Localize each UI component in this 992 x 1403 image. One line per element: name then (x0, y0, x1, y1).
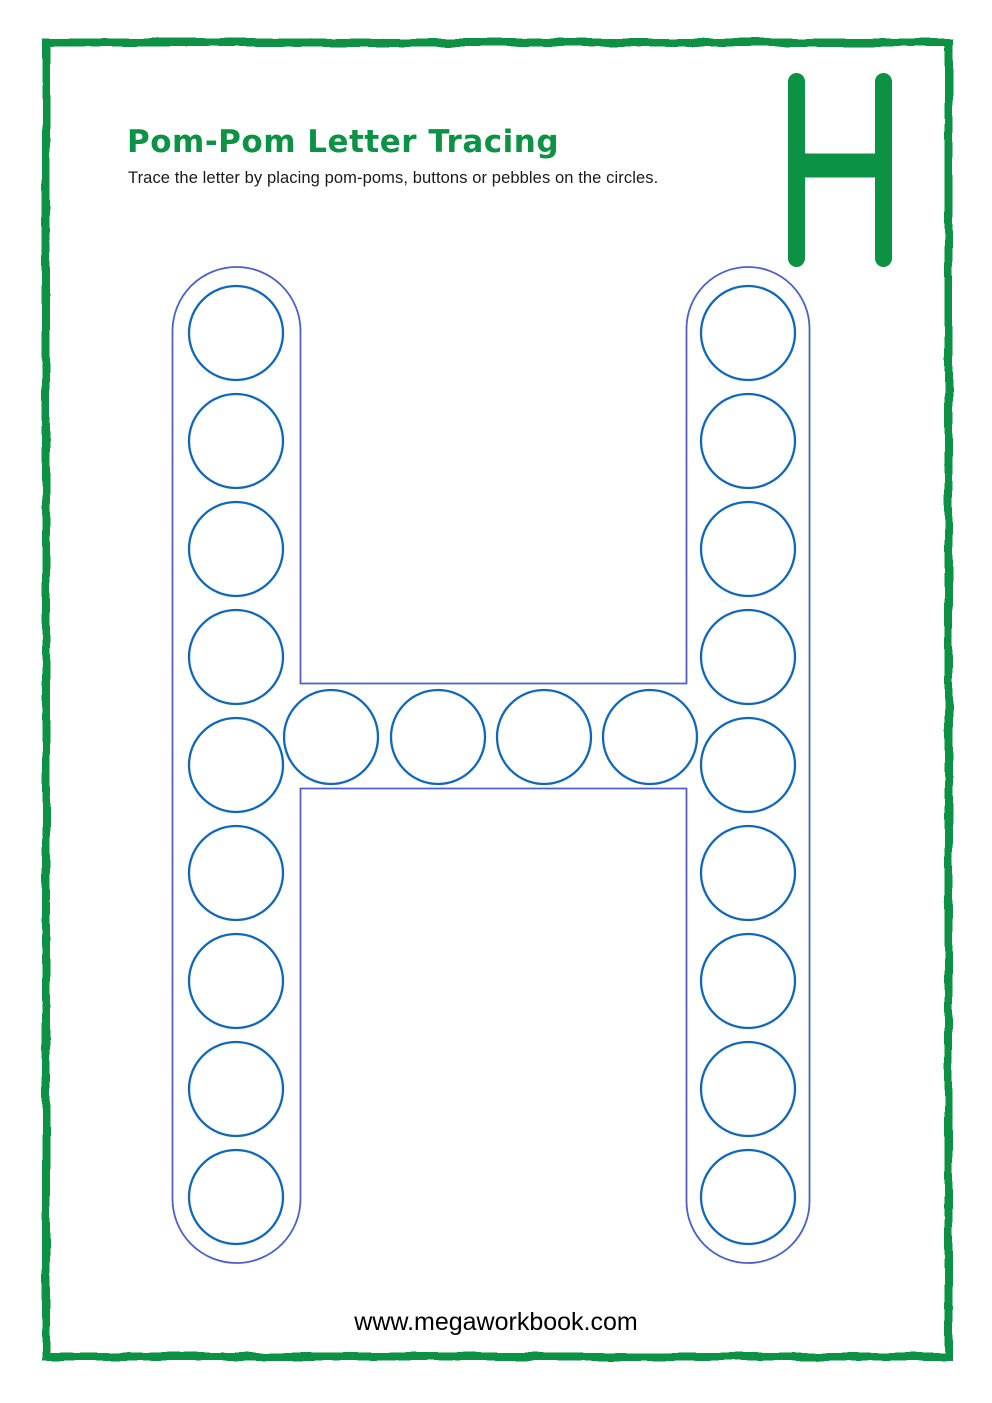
letter-outline-right-bar (687, 267, 810, 1263)
worksheet-page: Pom-Pom Letter Tracing Trace the letter … (0, 0, 992, 1403)
letter-outline-left-bar (173, 267, 301, 1263)
letter-crossbar-interior (298, 684, 689, 788)
tracing-letter (0, 0, 992, 1403)
footer-url: www.megaworkbook.com (0, 1308, 992, 1337)
